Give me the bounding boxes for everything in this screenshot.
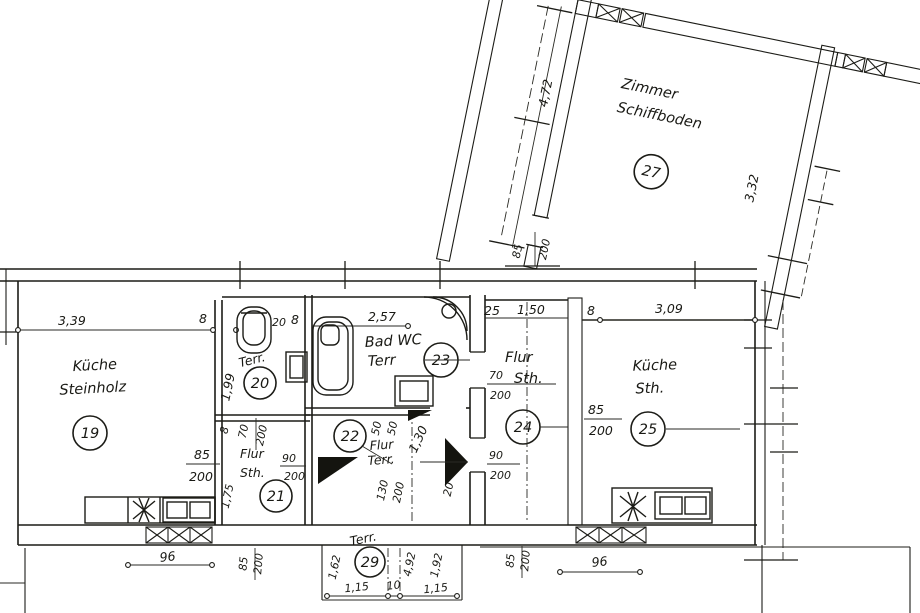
dim-text: 3,39: [58, 313, 86, 328]
dim-dot: [638, 570, 643, 575]
dim-text: 8: [199, 311, 207, 326]
room23-label-1: Bad WC: [364, 332, 423, 351]
room22-number: 22: [341, 429, 359, 445]
dim-dot: [398, 594, 403, 599]
dim-text: 1,15: [344, 580, 370, 595]
room21-label-1: Flur: [240, 446, 265, 461]
dim-text: 10: [386, 578, 401, 592]
dim-dot: [386, 594, 391, 599]
dim-dot: [210, 563, 215, 568]
dim-text: 90: [282, 452, 296, 465]
room22-label-2: Terr.: [367, 451, 395, 468]
room21-number: 21: [267, 489, 285, 505]
room25-number: 25: [639, 422, 657, 438]
dim-text: 85: [588, 402, 604, 417]
room25-label-1: Küche: [632, 357, 677, 375]
floor-plan-sheet: Zimmer Schiffboden 27 4,72 3,32 85 200: [0, 0, 920, 613]
room24-label-1: Flur: [505, 350, 534, 366]
dim-text: 8: [587, 303, 595, 318]
dim-dot: [753, 318, 758, 323]
room19-number: 19: [81, 426, 99, 442]
room19-label-1: Küche: [72, 357, 117, 375]
dim-text: 3,09: [655, 301, 683, 316]
room21-label-2: Sth.: [240, 465, 265, 480]
dim-text: 1,50: [517, 302, 545, 317]
dim-text: 20: [272, 316, 286, 329]
room29-number: 29: [361, 555, 379, 571]
dim-text: 85: [194, 447, 210, 462]
dim-dot: [126, 563, 131, 568]
dim-text: 200: [589, 423, 613, 438]
dim-dot: [16, 328, 21, 333]
room20-number: 20: [251, 376, 269, 392]
floor-plan-drawing: Zimmer Schiffboden 27 4,72 3,32 85 200: [0, 0, 920, 613]
dim-text: 96: [591, 553, 608, 570]
room23-label-2: Terr: [367, 353, 397, 370]
dim-text: 200: [518, 550, 533, 572]
room25-label-2: Sth.: [635, 381, 664, 398]
dim-text: 200: [251, 553, 266, 575]
dim-text: 1,15: [423, 581, 449, 596]
dim-dot: [406, 324, 411, 329]
dim-dot: [211, 328, 216, 333]
dim-dot: [558, 570, 563, 575]
dim-dot: [598, 318, 603, 323]
dim-text: 200: [490, 389, 511, 402]
dim-text: 90: [489, 449, 503, 462]
room23-number: 23: [432, 353, 450, 369]
dim-text: 200: [284, 470, 305, 483]
dim-text: 25: [484, 303, 500, 318]
dim-text: 8: [291, 312, 299, 327]
dim-dot: [325, 594, 330, 599]
dim-text: 2,57: [368, 309, 396, 324]
dim-text: 70: [489, 369, 503, 382]
dim-text: 85: [236, 556, 250, 571]
dim-dot: [455, 594, 460, 599]
room24-number: 24: [514, 420, 532, 436]
dim-text: 200: [189, 469, 213, 484]
dim-text: 200: [490, 469, 511, 482]
dim-text: 96: [159, 548, 176, 565]
dim-text: 85: [503, 553, 517, 568]
room24-label-2: Sth.: [514, 371, 543, 387]
